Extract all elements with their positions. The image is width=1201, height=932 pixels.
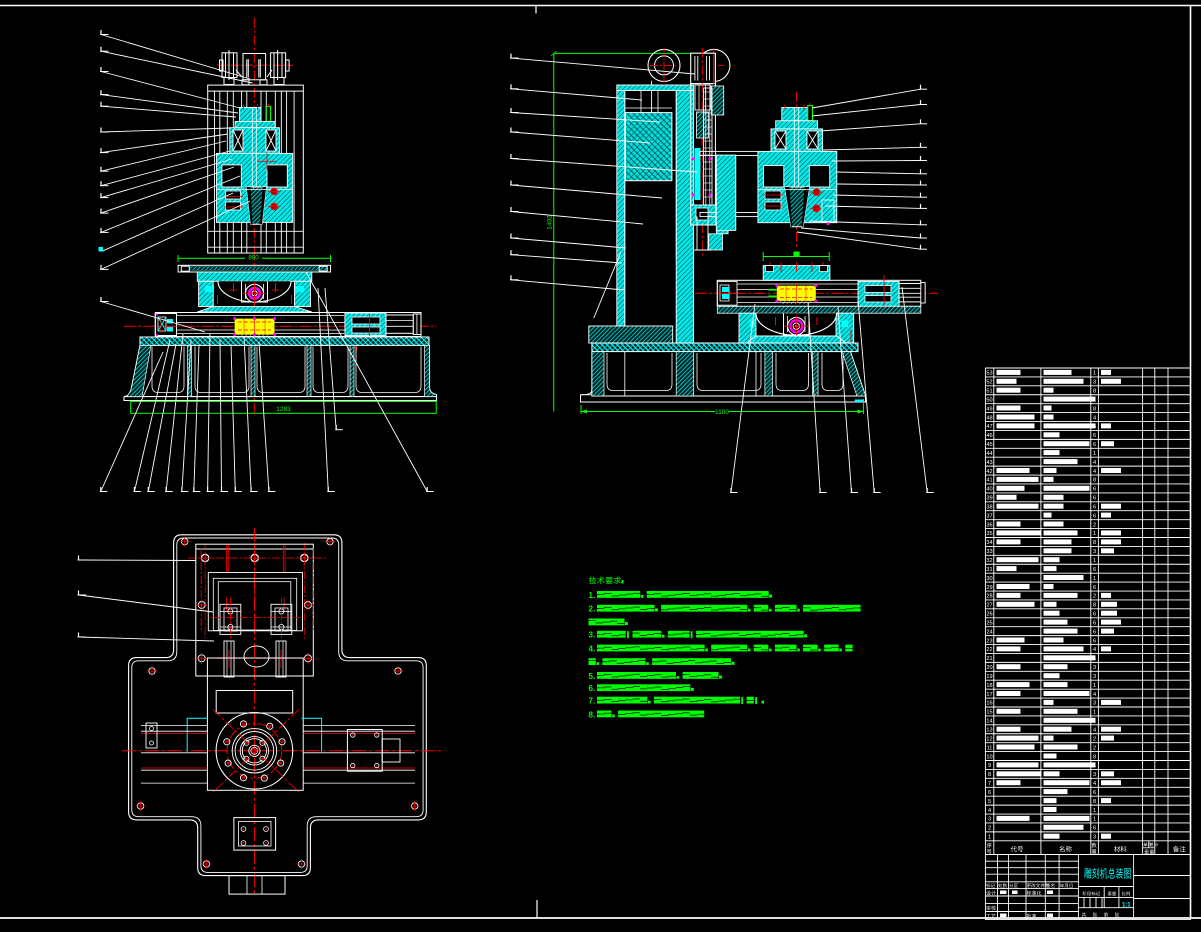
- svg-text:35: 35: [986, 531, 992, 537]
- svg-text:4: 4: [1093, 781, 1096, 787]
- svg-text:26: 26: [986, 612, 992, 618]
- svg-text:46: 46: [986, 433, 992, 439]
- svg-text:8: 8: [1093, 478, 1096, 484]
- svg-text:8: 8: [1093, 799, 1096, 805]
- svg-text:24: 24: [986, 629, 992, 635]
- svg-text:4: 4: [1093, 647, 1096, 653]
- svg-text:.: .: [593, 697, 595, 706]
- svg-text:42: 42: [986, 469, 992, 475]
- svg-text:51: 51: [986, 389, 992, 395]
- svg-text:.: .: [593, 591, 595, 600]
- svg-text:1: 1: [988, 835, 991, 841]
- svg-text:6: 6: [1093, 513, 1096, 519]
- svg-text:6: 6: [1093, 442, 1096, 448]
- svg-text:3: 3: [1093, 665, 1096, 671]
- svg-text:3: 3: [1093, 549, 1096, 555]
- svg-text:32: 32: [986, 558, 992, 564]
- svg-text:6: 6: [1093, 638, 1096, 644]
- svg-text:45: 45: [986, 442, 992, 448]
- svg-text:6: 6: [1093, 487, 1096, 493]
- svg-text:2: 2: [1093, 745, 1096, 751]
- svg-text:29: 29: [986, 585, 992, 591]
- svg-text:9: 9: [988, 763, 991, 769]
- svg-text:6: 6: [1093, 629, 1096, 635]
- svg-text:3: 3: [1093, 701, 1096, 707]
- svg-text:18: 18: [986, 683, 992, 689]
- svg-text:.: .: [593, 644, 595, 653]
- svg-text:1:1: 1:1: [1122, 902, 1131, 908]
- svg-text:7: 7: [988, 781, 991, 787]
- svg-text:1: 1: [1093, 683, 1096, 689]
- svg-text:8: 8: [1093, 754, 1096, 760]
- svg-text:6: 6: [1093, 790, 1096, 796]
- svg-text:40: 40: [986, 487, 992, 493]
- svg-text:6: 6: [1093, 585, 1096, 591]
- svg-text:6: 6: [1093, 433, 1096, 439]
- svg-text:31: 31: [986, 567, 992, 573]
- svg-text:33: 33: [986, 549, 992, 555]
- svg-text:1: 1: [1093, 531, 1096, 537]
- svg-text:47: 47: [986, 424, 992, 430]
- svg-text:8: 8: [1093, 603, 1096, 609]
- svg-text:.: .: [593, 710, 595, 719]
- svg-text:43: 43: [986, 460, 992, 466]
- svg-text:1402: 1402: [547, 215, 554, 230]
- svg-text:5: 5: [988, 799, 991, 805]
- svg-text:3: 3: [1093, 674, 1096, 680]
- svg-text:3: 3: [1093, 424, 1096, 430]
- svg-text:48: 48: [986, 415, 992, 421]
- svg-text:27: 27: [986, 603, 992, 609]
- svg-text:890: 890: [248, 255, 259, 262]
- svg-text:.: .: [593, 605, 595, 614]
- svg-text:1: 1: [1093, 656, 1096, 662]
- svg-text:25: 25: [986, 620, 992, 626]
- svg-text:2: 2: [1093, 594, 1096, 600]
- svg-text:1: 1: [1093, 558, 1096, 564]
- svg-text:1: 1: [1093, 817, 1096, 823]
- svg-text:.: .: [593, 684, 595, 693]
- svg-text:28: 28: [986, 594, 992, 600]
- svg-text:6: 6: [1093, 620, 1096, 626]
- svg-text:16: 16: [986, 701, 992, 707]
- svg-text:1: 1: [1093, 576, 1096, 582]
- svg-text:1100: 1100: [715, 409, 729, 416]
- svg-text:6: 6: [988, 790, 991, 796]
- svg-text:1: 1: [1093, 719, 1096, 725]
- svg-text:4: 4: [1093, 469, 1096, 475]
- svg-text:15: 15: [986, 710, 992, 716]
- svg-text:12: 12: [986, 736, 992, 742]
- svg-text:6: 6: [1093, 505, 1096, 511]
- svg-text:1: 1: [1093, 808, 1096, 814]
- svg-text:1: 1: [1093, 397, 1096, 403]
- svg-text:10: 10: [986, 754, 992, 760]
- svg-text:3: 3: [1093, 772, 1096, 778]
- svg-text:17: 17: [986, 692, 992, 698]
- svg-text:6: 6: [1093, 826, 1096, 832]
- svg-text:49: 49: [986, 406, 992, 412]
- svg-text:8: 8: [1093, 540, 1096, 546]
- svg-text:6: 6: [1093, 612, 1096, 618]
- svg-text:34: 34: [986, 540, 992, 546]
- svg-text:44: 44: [986, 451, 992, 457]
- svg-text:4: 4: [1093, 692, 1096, 698]
- svg-text:2: 2: [1093, 736, 1096, 742]
- svg-text:6: 6: [1093, 496, 1096, 502]
- svg-text:4: 4: [1093, 728, 1096, 734]
- svg-text:3: 3: [988, 817, 991, 823]
- svg-text:41: 41: [986, 478, 992, 484]
- svg-text:4: 4: [1093, 460, 1096, 466]
- svg-text:14: 14: [986, 719, 992, 725]
- svg-text:11: 11: [987, 745, 993, 751]
- svg-text:6: 6: [1093, 567, 1096, 573]
- svg-text:3: 3: [1093, 380, 1096, 386]
- svg-text:1: 1: [1093, 371, 1096, 377]
- svg-text:4: 4: [988, 808, 991, 814]
- svg-text:53: 53: [986, 371, 992, 377]
- svg-text:20: 20: [986, 665, 992, 671]
- svg-text:39: 39: [986, 496, 992, 502]
- svg-text:13: 13: [986, 728, 992, 734]
- svg-text:52: 52: [986, 380, 992, 386]
- svg-text:22: 22: [986, 647, 992, 653]
- svg-text:.: .: [593, 672, 595, 681]
- svg-text:30: 30: [986, 576, 992, 582]
- svg-text:50: 50: [986, 397, 992, 403]
- svg-text:2: 2: [1093, 522, 1096, 528]
- svg-text:8: 8: [988, 772, 991, 778]
- svg-text:3: 3: [1093, 835, 1096, 841]
- svg-text:8: 8: [1093, 406, 1096, 412]
- svg-text:4: 4: [1093, 415, 1096, 421]
- svg-text:23: 23: [986, 638, 992, 644]
- svg-text:.: .: [593, 631, 595, 640]
- svg-text:21: 21: [986, 656, 992, 662]
- svg-text:1: 1: [1093, 763, 1096, 769]
- svg-text:2: 2: [988, 826, 991, 832]
- svg-text:1: 1: [1093, 451, 1096, 457]
- svg-text:19: 19: [986, 674, 992, 680]
- svg-text:38: 38: [986, 505, 992, 511]
- svg-text:37: 37: [986, 513, 992, 519]
- svg-text:8: 8: [1093, 389, 1096, 395]
- svg-text:1283: 1283: [276, 406, 291, 413]
- svg-text:36: 36: [986, 522, 992, 528]
- svg-text:1: 1: [1093, 710, 1096, 716]
